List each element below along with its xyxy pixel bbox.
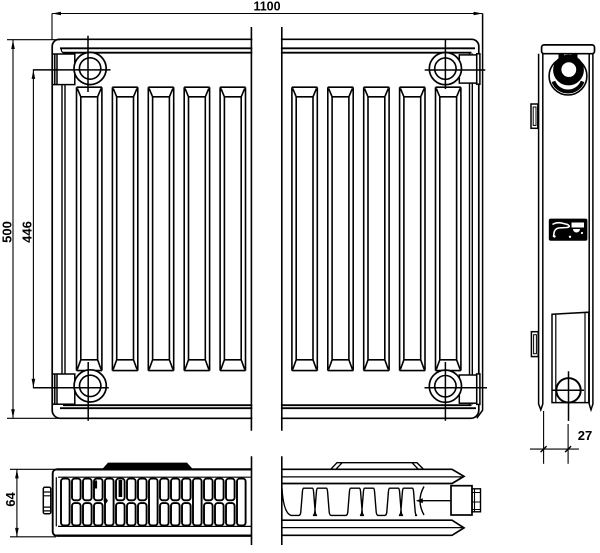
svg-text:64: 64 — [3, 492, 18, 507]
svg-text:446: 446 — [19, 221, 34, 243]
svg-text:1100: 1100 — [253, 0, 280, 14]
svg-text:27: 27 — [578, 428, 592, 443]
svg-text:500: 500 — [0, 221, 15, 243]
